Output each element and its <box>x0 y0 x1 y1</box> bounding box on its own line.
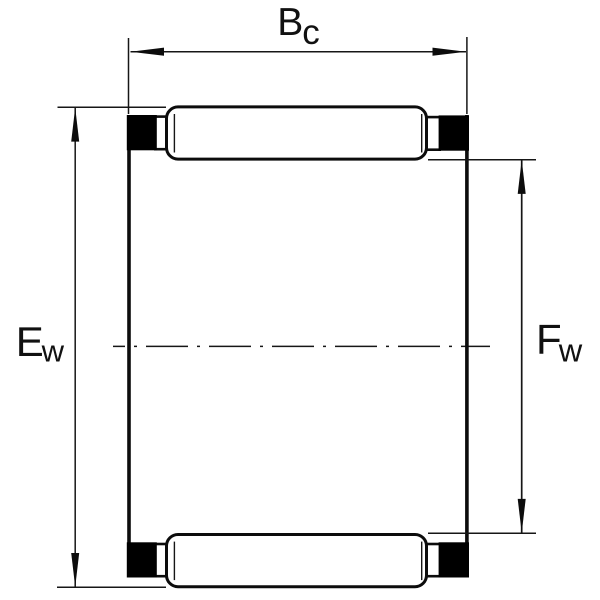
svg-text:F: F <box>536 315 562 362</box>
svg-text:w: w <box>558 333 583 369</box>
svg-text:B: B <box>277 1 303 44</box>
svg-text:c: c <box>302 13 320 52</box>
svg-text:E: E <box>16 318 44 365</box>
svg-text:w: w <box>41 333 65 368</box>
